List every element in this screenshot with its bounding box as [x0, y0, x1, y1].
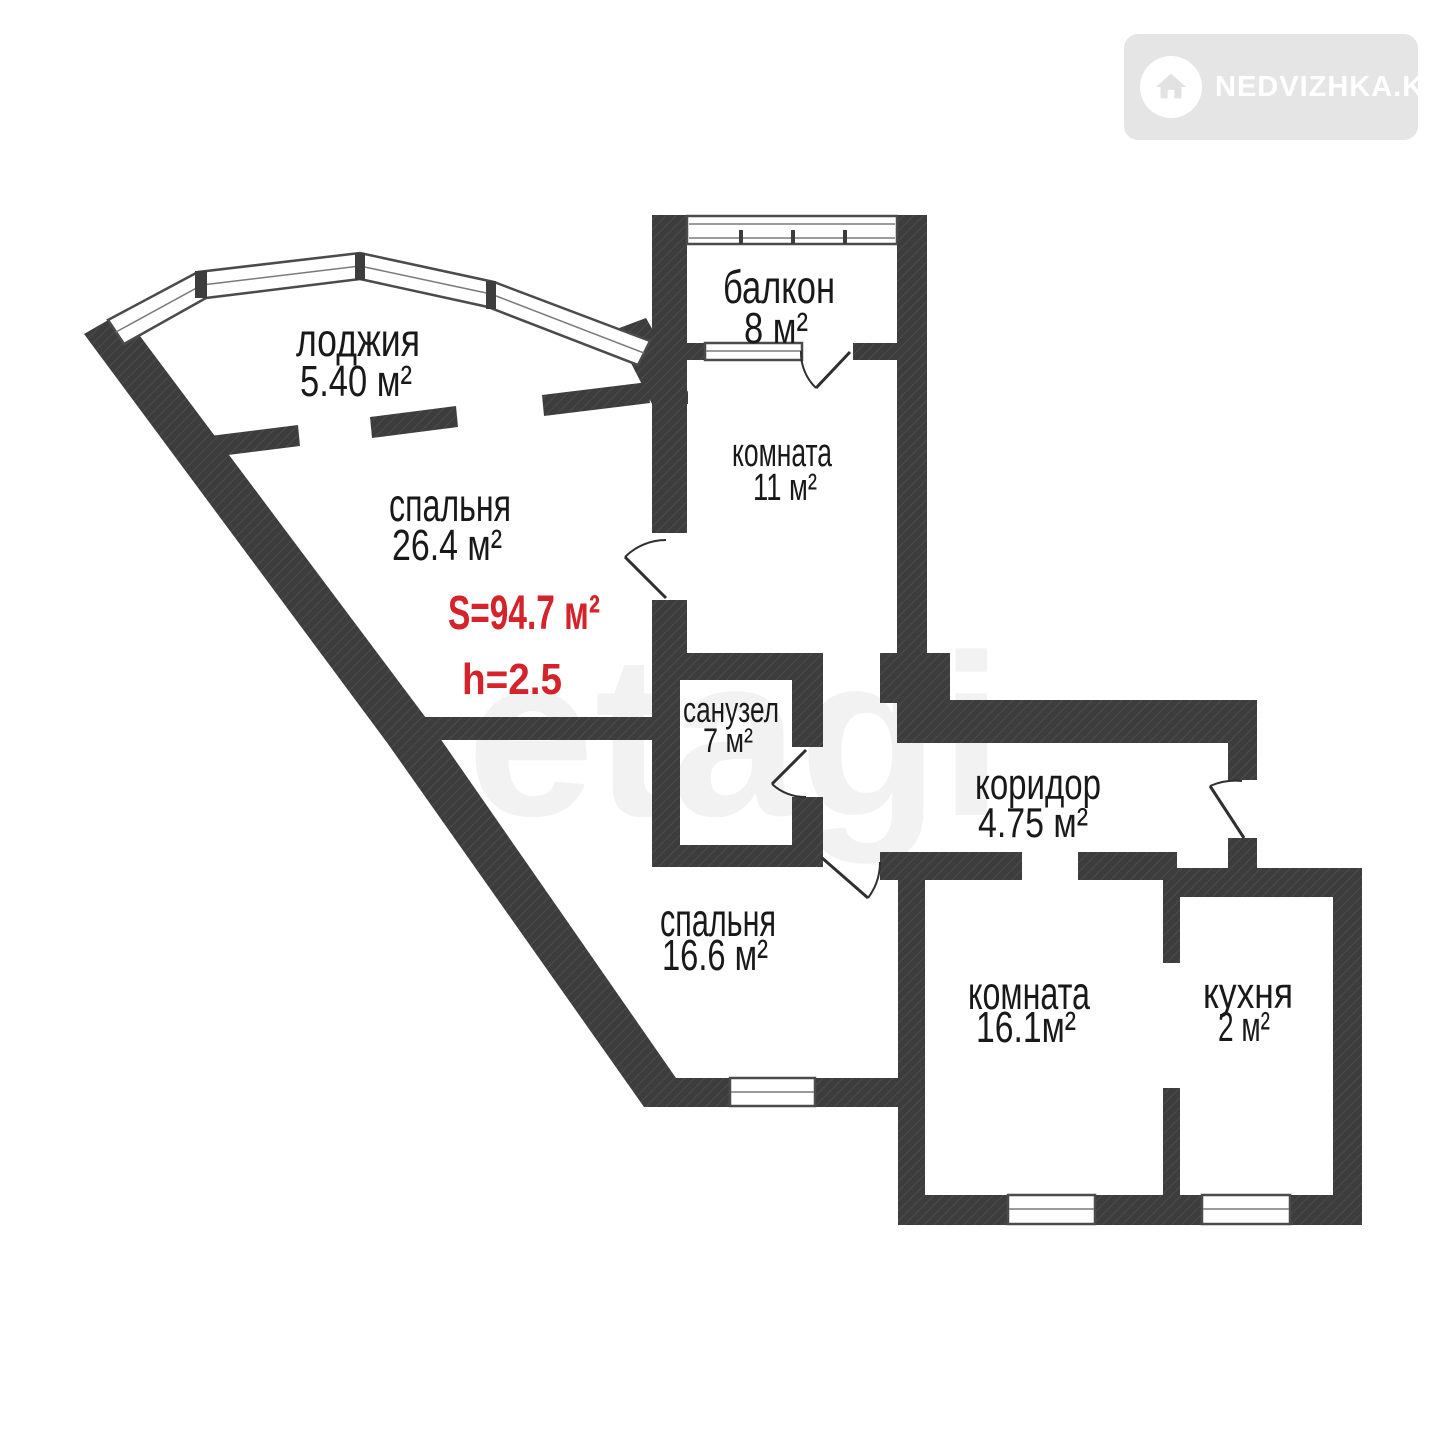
- logo-circle: [1140, 56, 1202, 118]
- door-komnata11: [625, 540, 666, 598]
- wall-kitchen-left-upper: [1163, 897, 1180, 963]
- wall-bottom-middle: [1095, 1195, 1202, 1225]
- door-balcony: [801, 351, 850, 388]
- loggia-mullion-3: [486, 281, 496, 309]
- wall-corridor-top: [897, 700, 1257, 743]
- wall-kitchen-left-lower: [1163, 1088, 1180, 1195]
- label-loggia-area: 5.40 м²: [300, 357, 412, 406]
- balcony-mullion-1: [739, 230, 743, 244]
- loggia-mullion-2: [355, 253, 365, 280]
- wall-sanuzel-left: [652, 680, 680, 867]
- floor-plan: etagi: [0, 0, 1440, 1440]
- wall-sanuzel-bottom: [652, 845, 823, 867]
- wall-komnata16-left: [898, 852, 925, 1225]
- wall-balcony-bottom-right: [853, 343, 897, 360]
- wall-komnata16-top-right: [1078, 852, 1177, 880]
- label-balcony-area: 8 м²: [744, 304, 808, 353]
- house-icon: [1152, 68, 1190, 106]
- wall-loggia-divider-dash: [370, 406, 458, 438]
- wall-kitchen-right: [1333, 868, 1362, 1225]
- label-total-area: S=94.7 м²: [448, 587, 600, 640]
- label-ceiling-height: h=2.5: [462, 655, 562, 704]
- label-sanuzel-area: 7 м²: [703, 722, 753, 760]
- label-spalnya16-area: 16.6 м²: [662, 931, 768, 980]
- wall-spalnya16-bottom-right: [815, 1078, 898, 1107]
- wall-balcony-komnata-right: [897, 215, 927, 705]
- wall-kitchen-top: [1163, 868, 1362, 897]
- wall-corridor-step: [880, 653, 950, 703]
- wall-loggia-divider-stub-left: [202, 425, 300, 458]
- wall-entrance-lower: [1228, 838, 1257, 870]
- wall-bottom-kitchen-right: [1290, 1195, 1333, 1225]
- balcony-mullion-2: [791, 230, 795, 244]
- balcony-mullion-3: [843, 230, 847, 244]
- floor-plan-page: etagi: [0, 0, 1440, 1440]
- label-komnata16-area: 16.1м²: [976, 1003, 1076, 1052]
- label-spalnya26-area: 26.4 м²: [392, 521, 502, 570]
- nedvizhka-logo-badge: NEDVIZHKA.KZ: [1124, 34, 1418, 140]
- loggia-mullion-1: [195, 271, 207, 298]
- label-kitchen-area: 2 м²: [1218, 1003, 1270, 1050]
- wall-loggia-divider-stub-right: [542, 382, 650, 416]
- wall-bottom-komnata-left: [898, 1195, 1008, 1225]
- wall-balcony-bottom-left: [687, 343, 705, 360]
- label-komnata11-area: 11 м²: [753, 467, 817, 509]
- label-koridor-area: 4.75 м²: [978, 799, 1088, 846]
- logo-text: NEDVIZHKA.KZ: [1215, 71, 1440, 104]
- wall-sanuzel-right-upper: [792, 680, 823, 747]
- wall-komnata11-bottom: [660, 653, 823, 680]
- door-entrance: [1210, 781, 1244, 838]
- wall-entrance-upper: [1228, 743, 1257, 780]
